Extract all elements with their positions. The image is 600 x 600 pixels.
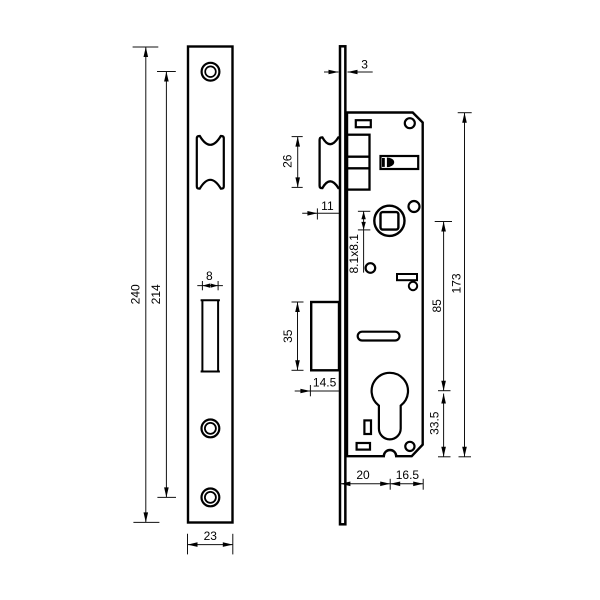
svg-text:240: 240 bbox=[128, 284, 142, 304]
svg-text:26: 26 bbox=[281, 154, 295, 168]
svg-text:8.1x8.1: 8.1x8.1 bbox=[347, 234, 361, 274]
svg-text:173: 173 bbox=[449, 273, 463, 293]
svg-text:23: 23 bbox=[204, 529, 218, 543]
svg-text:214: 214 bbox=[149, 284, 163, 304]
svg-text:14.5: 14.5 bbox=[313, 375, 337, 389]
svg-text:20: 20 bbox=[356, 468, 370, 482]
svg-text:35: 35 bbox=[281, 329, 295, 343]
svg-text:3: 3 bbox=[361, 57, 368, 71]
svg-text:85: 85 bbox=[430, 299, 444, 313]
svg-text:16.5: 16.5 bbox=[396, 468, 420, 482]
svg-text:33.5: 33.5 bbox=[428, 411, 442, 435]
svg-text:11: 11 bbox=[321, 199, 334, 213]
svg-text:8: 8 bbox=[206, 269, 213, 283]
